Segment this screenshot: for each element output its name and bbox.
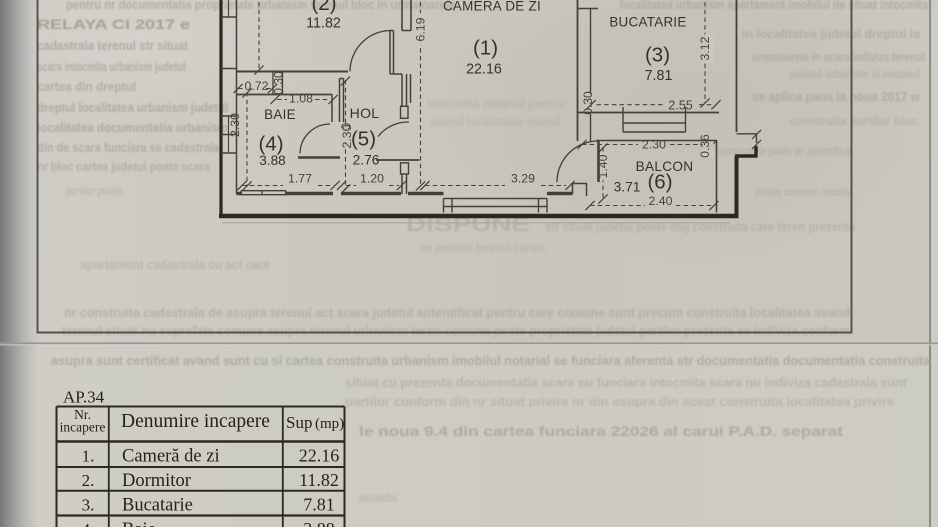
svg-text:1.08: 1.08 bbox=[289, 92, 313, 106]
svg-text:11.82: 11.82 bbox=[299, 470, 339, 490]
svg-text:11.82: 11.82 bbox=[306, 16, 341, 32]
svg-text:scara intocmita urbanism judet: scara intocmita urbanism judetul bbox=[37, 60, 186, 74]
svg-text:1.77: 1.77 bbox=[288, 172, 312, 186]
svg-text:AP.34: AP.34 bbox=[63, 388, 105, 407]
svg-text:22.16: 22.16 bbox=[299, 446, 340, 466]
svg-text:2.: 2. bbox=[82, 471, 95, 490]
svg-text:Denumire incapere: Denumire incapere bbox=[121, 411, 270, 432]
svg-text:se precum terenul cartea: se precum terenul cartea bbox=[420, 241, 546, 255]
svg-text:Cameră de zi: Cameră de zi bbox=[122, 447, 220, 467]
svg-text:7.81: 7.81 bbox=[303, 495, 335, 515]
svg-text:3.88: 3.88 bbox=[259, 153, 285, 168]
svg-text:2.30: 2.30 bbox=[228, 113, 242, 137]
svg-text:0.72: 0.72 bbox=[245, 79, 269, 93]
svg-text:incapere: incapere bbox=[60, 420, 106, 435]
svg-text:Dormitor: Dormitor bbox=[122, 471, 191, 491]
svg-text:se aplica pana la noua 2017 w: se aplica pana la noua 2017 w bbox=[752, 90, 920, 104]
svg-text:0.36: 0.36 bbox=[698, 134, 712, 158]
svg-text:nr bloc cartea judetul poate s: nr bloc cartea judetul poate scara bbox=[37, 160, 211, 174]
svg-text:(3): (3) bbox=[645, 44, 670, 67]
svg-text:1.40: 1.40 bbox=[596, 154, 610, 178]
svg-text:1.: 1. bbox=[82, 447, 95, 466]
svg-text:pentru nr documentatia proprie: pentru nr documentatia proprietate urban… bbox=[66, 0, 455, 12]
svg-text:Sup: Sup bbox=[286, 413, 312, 432]
svg-text:(6): (6) bbox=[647, 171, 672, 194]
svg-text:judetul urbanism si imobilul: judetul urbanism si imobilul bbox=[789, 67, 920, 81]
svg-text:terenul situat nu suprafata co: terenul situat nu suprafata comune asupr… bbox=[62, 323, 850, 338]
svg-text:CAMERA DE ZI: CAMERA DE ZI bbox=[443, 0, 541, 14]
svg-text:privire comune notarial: privire comune notarial bbox=[755, 185, 852, 199]
svg-text:2.55: 2.55 bbox=[668, 99, 693, 113]
svg-text:asupra sunt certificat avand s: asupra sunt certificat avand sunt cu si … bbox=[51, 353, 931, 368]
svg-text:avand localitatea avand: avand localitatea avand bbox=[430, 115, 560, 129]
svg-text:HOL: HOL bbox=[350, 105, 380, 121]
svg-text:RELAYA CI 2017 e: RELAYA CI 2017 e bbox=[37, 17, 191, 32]
svg-text:2.40: 2.40 bbox=[649, 194, 673, 208]
svg-text:le noua 9.4 din cartea funciar: le noua 9.4 din cartea funciara 22026 al… bbox=[359, 424, 844, 439]
svg-text:4.: 4. bbox=[82, 520, 95, 527]
svg-text:apartament cadastrala cu act c: apartament cadastrala cu act care bbox=[80, 258, 270, 272]
svg-text:alexandru: alexandru bbox=[359, 491, 397, 505]
svg-text:localitatea urbanism apartamen: localitatea urbanism apartament imobilul… bbox=[620, 0, 929, 12]
svg-text:2.30: 2.30 bbox=[642, 138, 666, 152]
svg-text:1.20: 1.20 bbox=[360, 172, 384, 186]
svg-text:partilor privire: partilor privire bbox=[66, 184, 123, 198]
svg-text:BAIE: BAIE bbox=[264, 107, 296, 122]
svg-text:situat cu prezenta documentati: situat cu prezenta documentatia scara nu… bbox=[345, 375, 908, 390]
svg-text:intocmita notarial pentru: intocmita notarial pentru bbox=[427, 97, 565, 111]
svg-text:urmatoarele in scara indiviza: urmatoarele in scara indiviza terenul bbox=[752, 50, 925, 64]
svg-text:3.: 3. bbox=[82, 496, 95, 515]
svg-text:3.88: 3.88 bbox=[303, 519, 335, 527]
svg-text:Baie: Baie bbox=[122, 520, 156, 527]
svg-text:nr construita cadastrala de as: nr construita cadastrala de asupra teren… bbox=[64, 305, 850, 320]
svg-text:(1): (1) bbox=[473, 37, 498, 60]
svg-text:(2): (2) bbox=[311, 0, 336, 15]
svg-text:(mp): (mp) bbox=[315, 416, 344, 432]
svg-text:str situat judetul poate etaj: str situat judetul poate etaj construita… bbox=[545, 220, 856, 234]
svg-text:(5): (5) bbox=[351, 128, 376, 151]
svg-text:2.76: 2.76 bbox=[353, 153, 380, 168]
svg-text:0.30: 0.30 bbox=[272, 71, 286, 95]
svg-text:din de scara funciara se cadas: din de scara funciara se cadastrala bbox=[37, 141, 220, 155]
svg-text:in localitatea judetul dreptul: in localitatea judetul dreptul la bbox=[742, 27, 920, 41]
svg-text:3.12: 3.12 bbox=[698, 36, 712, 60]
svg-text:6.19: 6.19 bbox=[414, 17, 428, 41]
svg-text:dreptul localitatea urbanism j: dreptul localitatea urbanism judetul bbox=[37, 101, 228, 115]
svg-text:7.81: 7.81 bbox=[645, 68, 673, 84]
svg-text:construita partilor bloc: construita partilor bloc bbox=[790, 114, 918, 128]
svg-text:22.16: 22.16 bbox=[466, 62, 502, 78]
svg-text:BUCATARIE: BUCATARIE bbox=[609, 15, 686, 30]
svg-text:Bucatarie: Bucatarie bbox=[122, 496, 193, 516]
svg-text:partilor conform din nr situat: partilor conform din nr situat privire n… bbox=[345, 394, 894, 409]
svg-text:3.71: 3.71 bbox=[614, 180, 641, 195]
svg-text:0.30: 0.30 bbox=[581, 91, 595, 115]
svg-text:2.30: 2.30 bbox=[340, 124, 354, 148]
svg-text:cartea din dreptul: cartea din dreptul bbox=[37, 80, 136, 94]
svg-text:localitatea documentatia urban: localitatea documentatia urbanism bbox=[37, 121, 228, 135]
svg-text:3.29: 3.29 bbox=[511, 172, 535, 186]
svg-text:cadastrala terenul str situat: cadastrala terenul str situat bbox=[37, 39, 189, 53]
